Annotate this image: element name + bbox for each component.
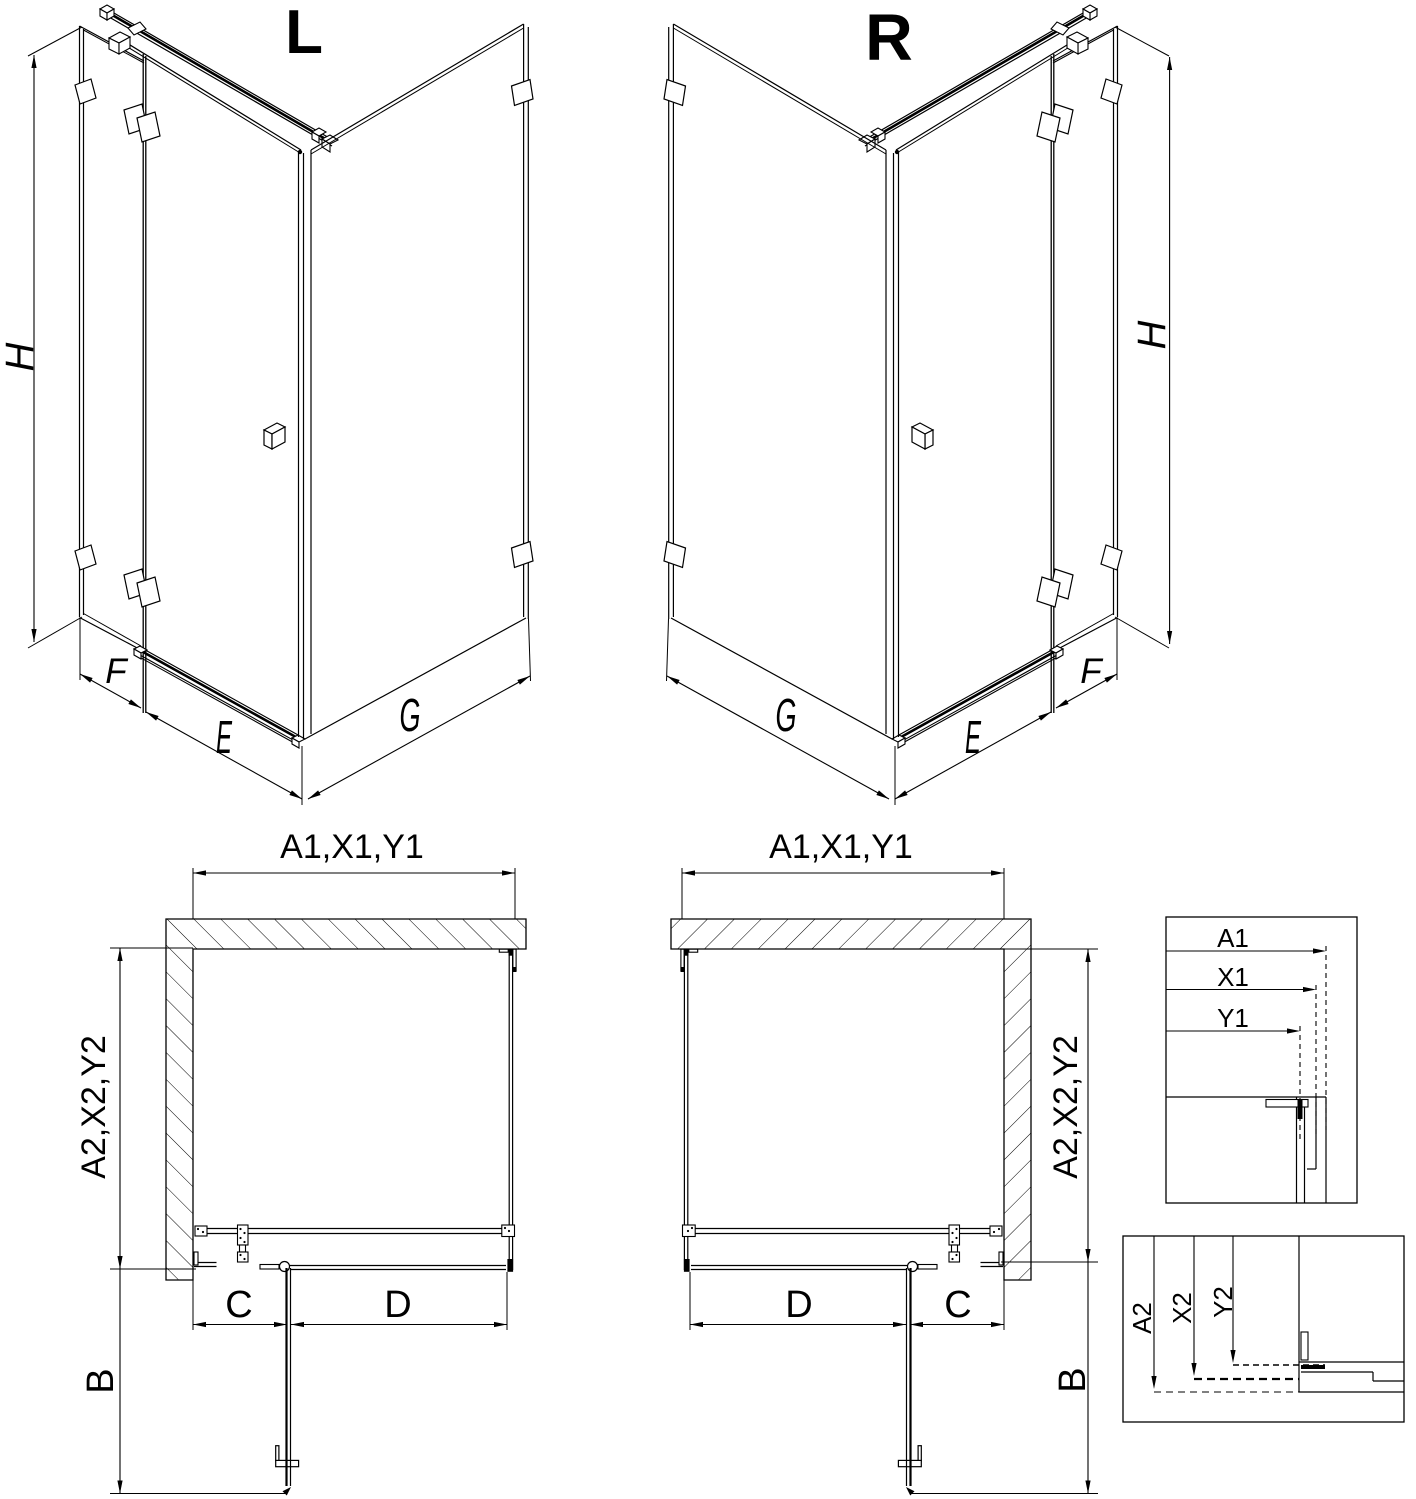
svg-text:Y2: Y2	[1208, 1286, 1238, 1318]
svg-text:B: B	[1052, 1367, 1094, 1392]
svg-text:A1,X1,Y1: A1,X1,Y1	[280, 828, 424, 866]
svg-text:G: G	[400, 689, 421, 741]
svg-text:X1: X1	[1217, 962, 1249, 992]
svg-text:H: H	[1130, 320, 1174, 349]
svg-text:D: D	[384, 1284, 411, 1326]
svg-text:A1: A1	[1217, 923, 1249, 953]
svg-text:D: D	[785, 1284, 812, 1326]
svg-text:F: F	[1080, 652, 1104, 691]
svg-text:A2,X2,Y2: A2,X2,Y2	[75, 1035, 113, 1179]
svg-text:A2: A2	[1127, 1302, 1157, 1334]
svg-text:G: G	[776, 689, 797, 741]
svg-text:A1,X1,Y1: A1,X1,Y1	[769, 828, 913, 866]
svg-text:X2: X2	[1167, 1292, 1197, 1324]
svg-text:E: E	[965, 711, 982, 763]
svg-text:C: C	[225, 1284, 252, 1326]
svg-text:E: E	[216, 711, 233, 763]
svg-text:R: R	[865, 0, 913, 74]
svg-text:B: B	[80, 1368, 122, 1393]
svg-text:Y1: Y1	[1217, 1003, 1249, 1033]
svg-text:F: F	[105, 652, 129, 691]
svg-text:C: C	[944, 1284, 971, 1326]
svg-text:H: H	[0, 342, 42, 371]
svg-text:A2,X2,Y2: A2,X2,Y2	[1047, 1035, 1085, 1179]
svg-text:L: L	[285, 0, 323, 67]
